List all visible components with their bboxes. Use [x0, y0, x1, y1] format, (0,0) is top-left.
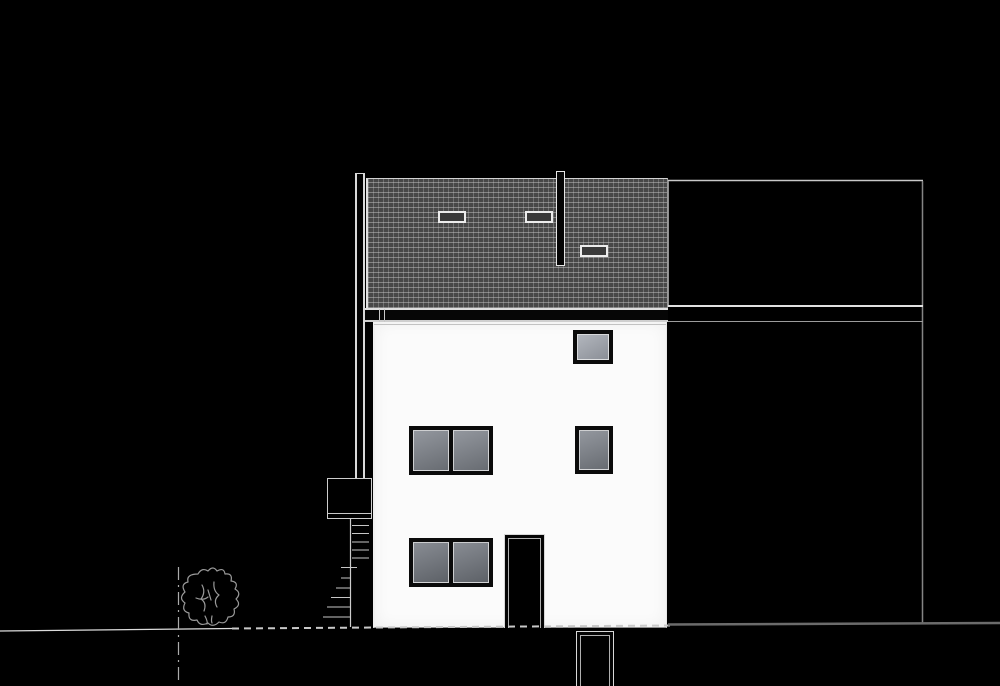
roof-skylight-right	[580, 245, 608, 257]
attic-window	[573, 330, 613, 364]
balcony-landing	[327, 478, 372, 519]
window-glass	[413, 430, 449, 471]
tree-sketch	[182, 568, 239, 625]
ground-line-left	[0, 629, 232, 632]
window-glass	[453, 542, 489, 583]
roof-skylight-left	[438, 211, 466, 223]
exterior-stairs	[323, 526, 369, 618]
ground-line-right	[668, 623, 1000, 625]
eave-band	[361, 308, 668, 322]
window-glass	[413, 542, 449, 583]
window-glass	[577, 334, 609, 360]
elevation-canvas	[0, 0, 1000, 686]
door-leaf	[508, 538, 541, 628]
support-post	[355, 173, 365, 518]
roof-hatch	[366, 178, 668, 308]
window-glass	[453, 430, 489, 471]
window-glass	[579, 430, 609, 470]
entrance-door-left	[504, 534, 545, 628]
roof-skylight-middle	[525, 211, 553, 223]
chimney	[556, 171, 565, 266]
upper-double-window	[409, 426, 493, 475]
door-leaf	[580, 635, 610, 686]
ground-double-window	[409, 538, 493, 587]
upper-right-window	[575, 426, 613, 474]
tree-sketch-detail	[196, 582, 219, 624]
entrance-door-right	[576, 631, 614, 686]
